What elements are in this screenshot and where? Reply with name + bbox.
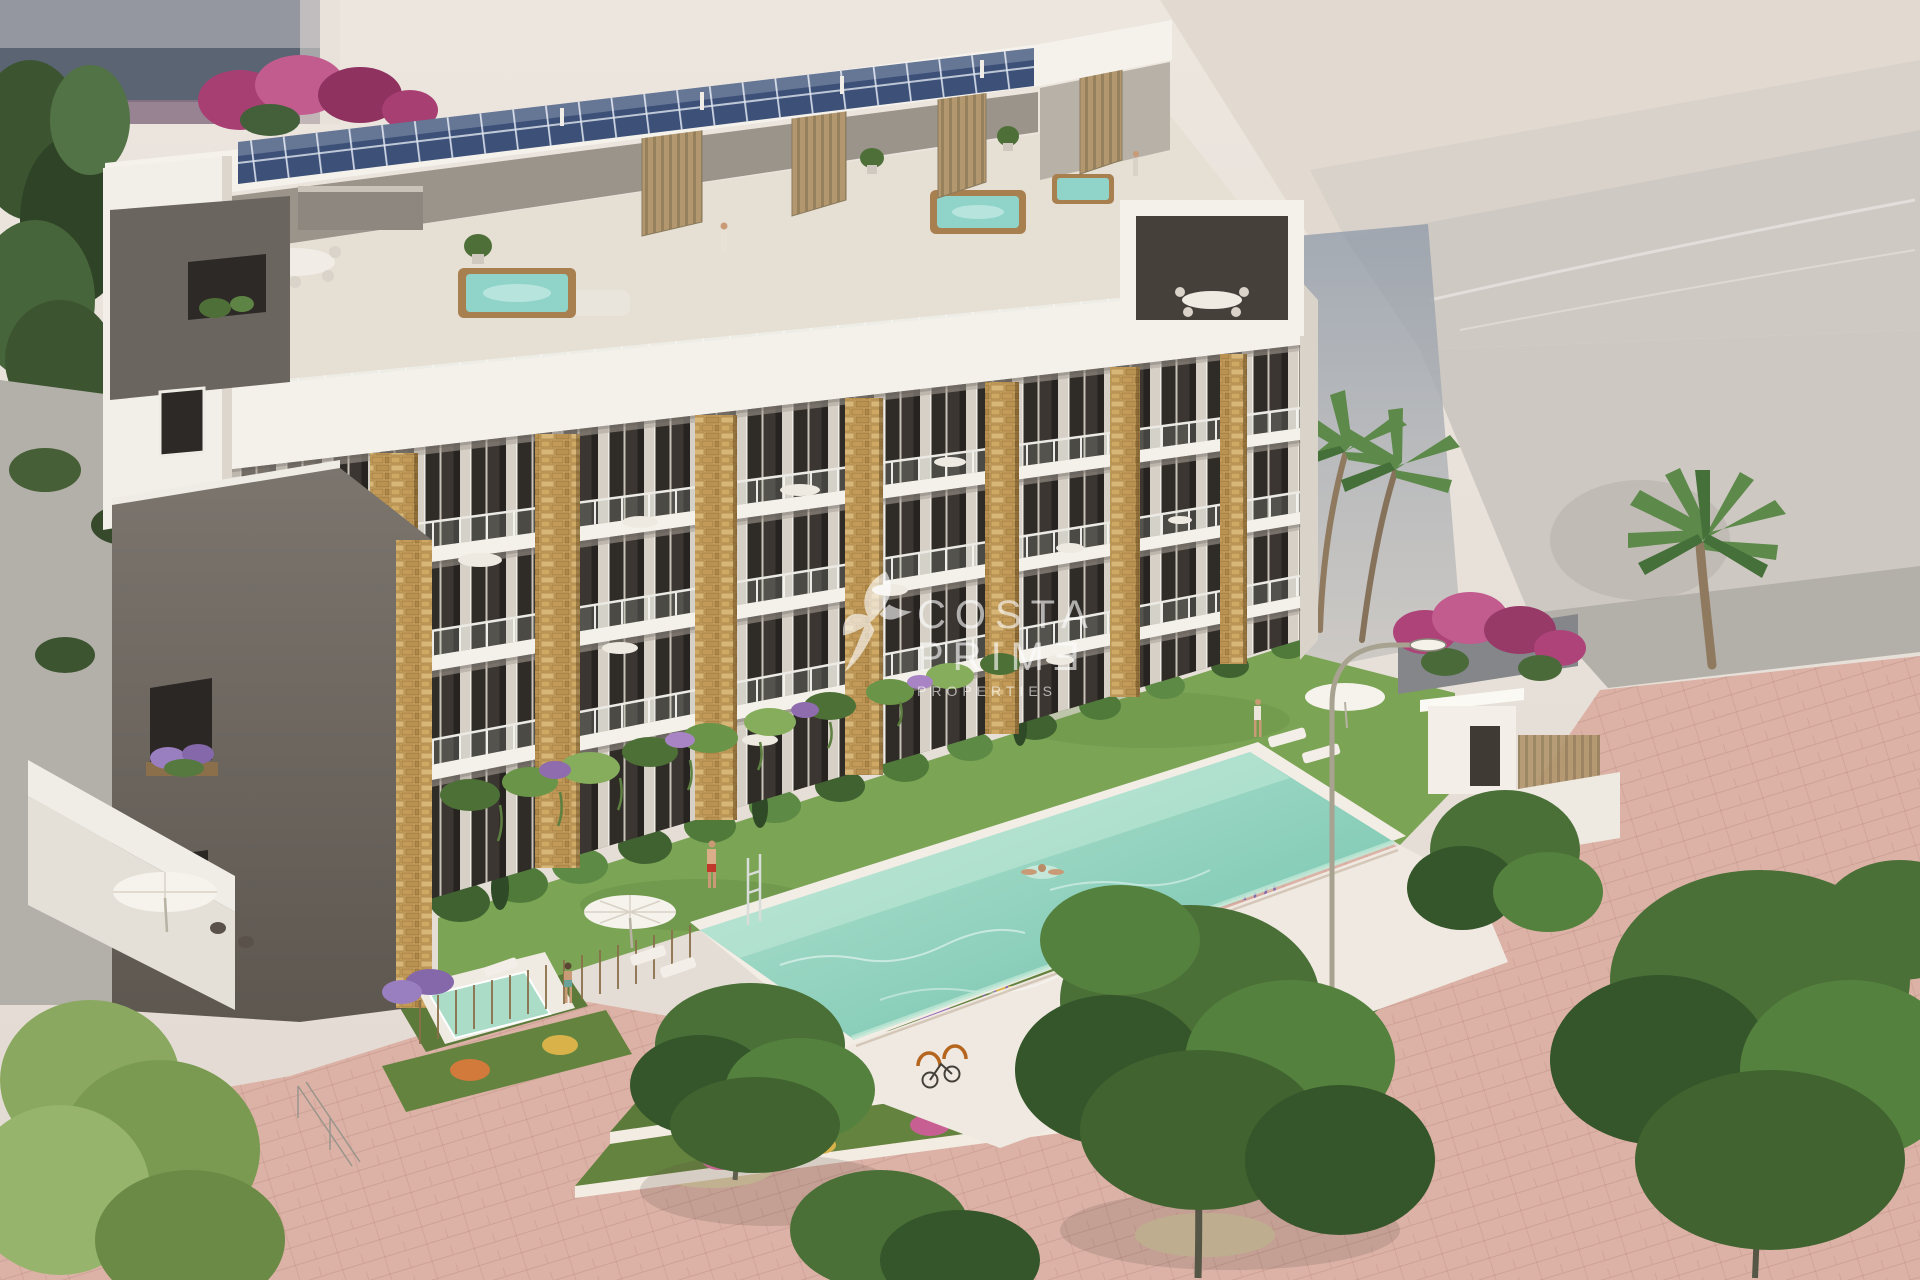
jacuzzi [458, 268, 576, 318]
rooftop-person [721, 223, 728, 253]
corner-frame-balcony [1128, 208, 1296, 328]
architectural-render: COSTA PRIMƎ PROPERTIES [0, 0, 1920, 1280]
render-scene [0, 0, 1920, 1280]
jacuzzi [930, 190, 1026, 234]
lavender-bush [382, 980, 422, 1004]
jacuzzi [1052, 174, 1114, 204]
